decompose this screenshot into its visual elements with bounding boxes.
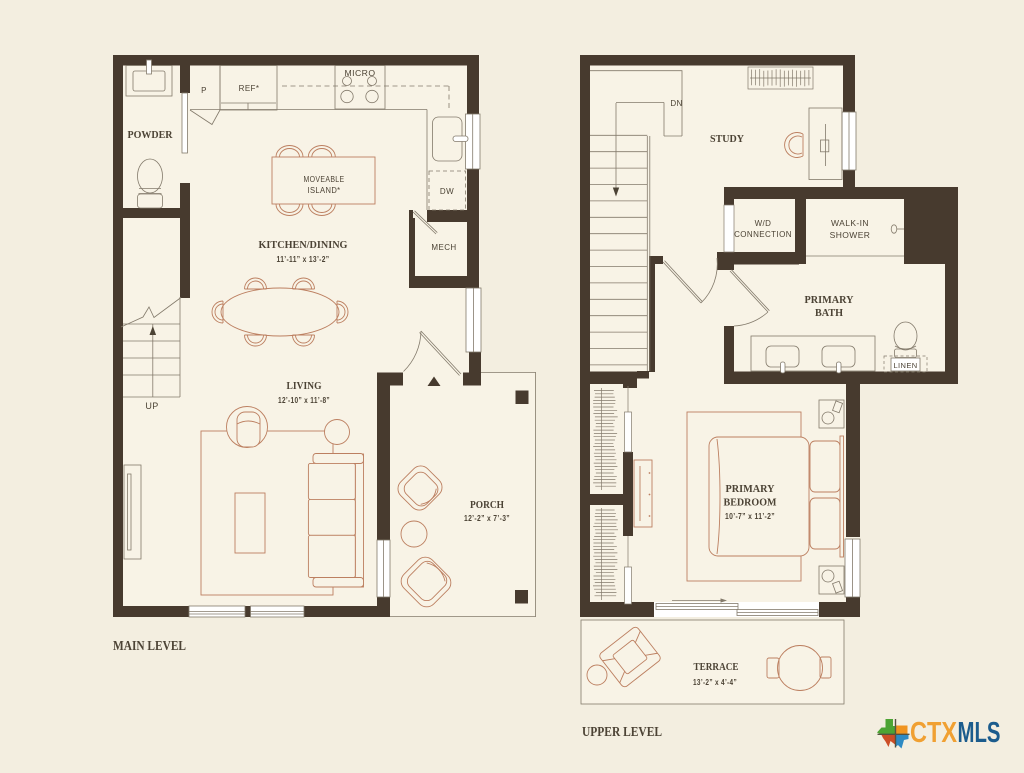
svg-text:BEDROOM: BEDROOM [724, 497, 778, 509]
svg-text:P: P [201, 86, 207, 95]
svg-text:12’-10” x 11’-8”: 12’-10” x 11’-8” [278, 396, 330, 405]
svg-text:10’-7” x 11’-2”: 10’-7” x 11’-2” [725, 512, 775, 521]
svg-text:UP: UP [145, 401, 158, 411]
svg-text:PRIMARY: PRIMARY [805, 294, 854, 306]
svg-text:12’-2” x 7’-3”: 12’-2” x 7’-3” [464, 514, 510, 523]
svg-text:MOVEABLE: MOVEABLE [304, 175, 345, 184]
svg-text:MAIN LEVEL: MAIN LEVEL [113, 639, 186, 654]
svg-text:W/D: W/D [755, 219, 772, 228]
svg-text:13’-2” x 4’-4”: 13’-2” x 4’-4” [693, 678, 737, 687]
svg-text:WALK-IN: WALK-IN [831, 218, 869, 228]
svg-text:ISLAND*: ISLAND* [308, 186, 341, 195]
svg-text:LIVING: LIVING [287, 380, 322, 392]
svg-text:MLS: MLS [958, 717, 1001, 749]
svg-text:DW: DW [440, 187, 454, 196]
svg-text:BATH: BATH [815, 307, 843, 319]
svg-text:DN: DN [670, 99, 682, 108]
svg-text:KITCHEN/DINING: KITCHEN/DINING [259, 239, 348, 251]
svg-text:REF*: REF* [239, 84, 260, 93]
svg-text:MICRO: MICRO [345, 69, 376, 78]
svg-text:STUDY: STUDY [710, 133, 744, 145]
svg-text:TERRACE: TERRACE [694, 661, 739, 673]
svg-text:SHOWER: SHOWER [830, 230, 871, 240]
svg-text:LINEN: LINEN [893, 361, 917, 370]
svg-text:UPPER LEVEL: UPPER LEVEL [582, 725, 662, 740]
svg-text:CONNECTION: CONNECTION [734, 230, 792, 239]
svg-text:MECH: MECH [431, 243, 456, 252]
svg-text:CTX: CTX [910, 717, 958, 749]
svg-text:PORCH: PORCH [470, 499, 504, 511]
svg-text:POWDER: POWDER [128, 129, 174, 141]
svg-text:11’-11” x 13’-2”: 11’-11” x 13’-2” [277, 255, 330, 264]
svg-text:PRIMARY: PRIMARY [726, 483, 775, 495]
